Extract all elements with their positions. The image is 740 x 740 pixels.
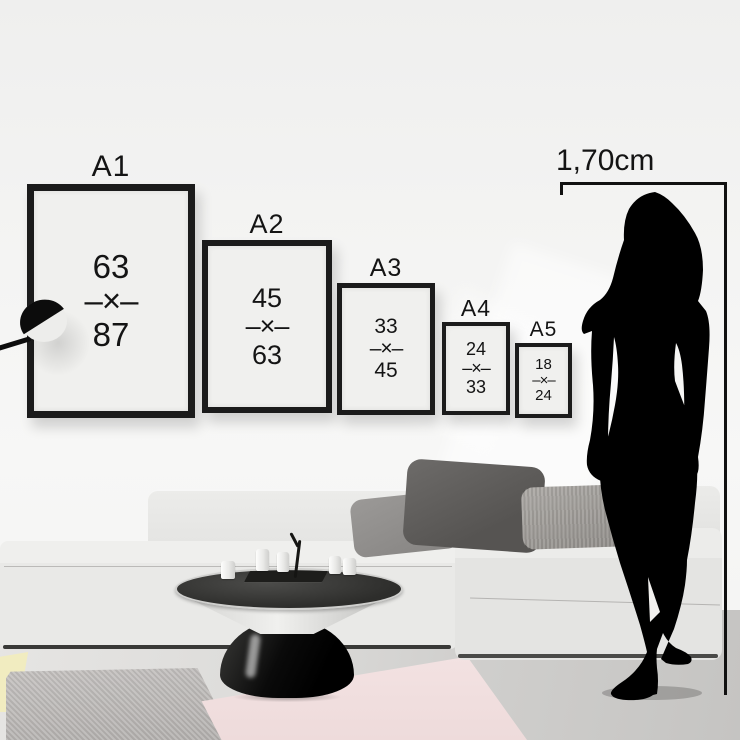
frame-a2-label: A2 xyxy=(202,209,332,240)
height-measurement-label: 1,70cm xyxy=(556,144,654,178)
frame-a5-dimensions: 18 –×– 24 xyxy=(532,357,554,404)
frame-a3-dimensions: 33 –×– 45 xyxy=(370,316,403,381)
grey-rug xyxy=(6,668,234,740)
frame-a4-width-value: 24 xyxy=(462,340,490,359)
candle-cylinder xyxy=(343,558,356,575)
poster-frame-a2: A2 45 –×– 63 xyxy=(202,209,332,413)
frame-a4-height-value: 33 xyxy=(462,378,490,397)
frame-a4-multiply-separator: –×– xyxy=(462,359,490,378)
room-scene: A1 63 –×– 87 A2 45 –×– 63 A3 33 –×– 45 xyxy=(0,0,740,740)
frame-a4-dimensions: 24 –×– 33 xyxy=(462,340,490,396)
frame-a5-height-value: 24 xyxy=(532,388,554,404)
frame-a2-multiply-separator: –×– xyxy=(246,312,289,340)
frame-a3-box: 33 –×– 45 xyxy=(337,283,435,415)
frame-a2-height-value: 63 xyxy=(246,341,289,369)
book-on-table xyxy=(244,571,328,582)
frame-a5-multiply-separator: –×– xyxy=(532,373,554,389)
frame-a3-height-value: 45 xyxy=(370,360,403,382)
frame-a3-label: A3 xyxy=(337,254,435,283)
candle-cylinder xyxy=(221,561,235,579)
frame-a4-box: 24 –×– 33 xyxy=(442,322,510,415)
poster-frame-a4: A4 24 –×– 33 xyxy=(442,295,510,415)
frame-a1-width-value: 63 xyxy=(85,250,138,284)
frame-a4-label: A4 xyxy=(442,295,510,322)
poster-frame-a3: A3 33 –×– 45 xyxy=(337,254,435,415)
candle-cylinder xyxy=(329,556,341,574)
candle-cylinder xyxy=(277,552,289,572)
frame-a1-label: A1 xyxy=(27,150,195,184)
frame-a3-multiply-separator: –×– xyxy=(370,338,403,360)
frame-a3-width-value: 33 xyxy=(370,316,403,338)
candle-cylinder xyxy=(256,549,269,571)
frame-a2-width-value: 45 xyxy=(246,284,289,312)
floor-lamp-icon xyxy=(0,286,104,376)
woman-silhouette-icon xyxy=(560,185,730,715)
frame-a2-dimensions: 45 –×– 63 xyxy=(246,284,289,368)
frame-a5-width-value: 18 xyxy=(532,357,554,373)
frame-a2-box: 45 –×– 63 xyxy=(202,240,332,413)
